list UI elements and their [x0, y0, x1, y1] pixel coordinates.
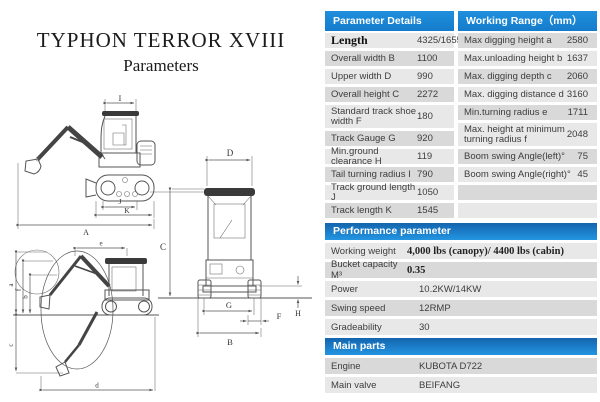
machine-name: TYPHON TERROR XVIII — [0, 28, 322, 53]
spec-sheet: TYPHON TERROR XVIII Parameters I — [0, 0, 600, 402]
range-label: Max. digging distance d — [458, 90, 567, 100]
spec-value: 2272 — [417, 89, 438, 100]
dim-label-G: G — [226, 300, 232, 310]
spec-row: Min.ground clearance H119 — [325, 149, 454, 164]
spec-row: Track ground length J1050 — [325, 185, 454, 200]
parameter-panel: Parameter Details（mm） Working Range（mm） … — [325, 11, 597, 396]
part-row: EngineKUBOTA D722 — [325, 358, 597, 374]
performance-section-header: Performance parameter — [325, 223, 597, 240]
performance-rows: Working weight4,000 lbs (canopy)/ 4400 l… — [325, 243, 597, 335]
range-value: 2060 — [567, 71, 597, 82]
spec-value: 920 — [417, 133, 433, 144]
range-value: 45 — [577, 169, 597, 180]
main-parts-rows: EngineKUBOTA D722Main valveBEIFANG — [325, 358, 597, 393]
range-value: 2580 — [567, 35, 597, 46]
performance-value: 30 — [403, 322, 430, 333]
range-label: Boom swing Angle(left)° — [458, 152, 577, 162]
performance-row: Power10.2KW/14KW — [325, 281, 597, 297]
spec-row: Track length K1545 — [325, 203, 454, 218]
performance-label: Bucket capacity M³ — [325, 259, 403, 281]
spec-label: Track length K — [325, 206, 417, 216]
range-row: Max. height at minimum turning radius f2… — [458, 123, 597, 146]
performance-row: Swing speed12RMP — [325, 300, 597, 316]
performance-row: Gradeability30 — [325, 319, 597, 335]
range-value: 1637 — [567, 53, 597, 64]
dim-label-A: A — [83, 228, 89, 237]
spec-value: 4325/1655 — [417, 35, 462, 46]
spec-label: Upper width D — [325, 72, 417, 82]
dim-label-c: c — [7, 343, 15, 346]
spec-value: 1545 — [417, 205, 438, 216]
dim-label-J: J — [119, 197, 122, 206]
dim-label-B: B — [227, 337, 233, 347]
performance-label: Power — [325, 284, 403, 295]
dim-label-b: b — [22, 295, 30, 299]
spec-value: 1050 — [417, 187, 438, 198]
spec-row: Standard track shoe width F180 — [325, 105, 454, 128]
spec-label: Min.ground clearance H — [325, 147, 417, 167]
range-value: 2048 — [567, 129, 597, 140]
performance-value: 10.2KW/14KW — [403, 284, 481, 295]
performance-label: Working weight — [325, 246, 403, 257]
range-row: Boom swing Angle(left)°75 — [458, 149, 597, 164]
front-view-diagram: D C H G F — [150, 112, 320, 362]
working-range-diagram: e a f b c d — [5, 240, 165, 402]
performance-label: Swing speed — [325, 303, 403, 314]
dim-label-D: D — [227, 148, 234, 158]
working-range-column: Max digging height a2580Max.unloading he… — [458, 33, 597, 221]
dim-label-K: K — [124, 206, 130, 215]
working-range-header: Working Range（mm） — [458, 11, 597, 31]
dim-label-F: F — [277, 311, 282, 321]
part-value: BEIFANG — [403, 380, 460, 391]
spec-label: Overall height C — [325, 90, 417, 100]
range-value: 3160 — [567, 89, 597, 100]
performance-row: Bucket capacity M³0.35 — [325, 262, 597, 278]
part-label: Engine — [325, 361, 403, 372]
title-subline: Parameters — [0, 56, 322, 76]
range-empty-row — [458, 185, 597, 200]
range-row: Max. digging distance d3160 — [458, 87, 597, 102]
spec-table-header: Parameter Details（mm） Working Range（mm） — [325, 11, 597, 31]
range-label: Min.turning radius e — [458, 108, 568, 118]
part-label: Main valve — [325, 380, 403, 391]
range-row: Max digging height a2580 — [458, 33, 597, 48]
range-row: Min.turning radius e1711 — [458, 105, 597, 120]
range-row: Max.unloading height b1637 — [458, 51, 597, 66]
range-label: Boom swing Angle(right)° — [458, 170, 577, 180]
parameter-details-column: Length4325/1655Overall width B1100Upper … — [325, 33, 454, 221]
spec-label: Track Gauge G — [325, 134, 417, 144]
spec-label: Overall width B — [325, 54, 417, 64]
range-label: Max digging height a — [458, 36, 567, 46]
range-row: Boom swing Angle(right)°45 — [458, 167, 597, 182]
spec-value: 119 — [417, 151, 432, 162]
spec-row: Upper width D990 — [325, 69, 454, 84]
dim-label-I: I — [119, 94, 122, 103]
main-parts-section-header: Main parts — [325, 338, 597, 355]
performance-value: 12RMP — [403, 303, 451, 314]
performance-row: Working weight4,000 lbs (canopy)/ 4400 l… — [325, 243, 597, 259]
dim-label-e: e — [99, 240, 102, 248]
range-value: 1711 — [568, 107, 597, 118]
range-empty-row — [458, 203, 597, 218]
range-label: Max.unloading height b — [458, 54, 567, 64]
spec-value: 990 — [417, 71, 433, 82]
page-title: TYPHON TERROR XVIII Parameters — [0, 28, 322, 76]
performance-label: Gradeability — [325, 322, 403, 333]
range-value: 75 — [577, 151, 597, 162]
spec-value: 1100 — [417, 53, 437, 64]
spec-value: 790 — [417, 169, 433, 180]
range-label: Max. height at minimum turning radius f — [458, 125, 567, 145]
performance-value: 0.35 — [403, 265, 425, 276]
range-row: Max. digging depth c2060 — [458, 69, 597, 84]
side-view-diagram: I J K A — [10, 93, 160, 237]
part-value: KUBOTA D722 — [403, 361, 482, 372]
spec-label: Length — [325, 34, 417, 47]
spec-value: 180 — [417, 111, 433, 122]
spec-row: Overall width B1100 — [325, 51, 454, 66]
spec-row: Track Gauge G920 — [325, 131, 454, 146]
spec-row: Tail turning radius I790 — [325, 167, 454, 182]
spec-label: Standard track shoe width F — [325, 107, 417, 127]
performance-value: 4,000 lbs (canopy)/ 4400 lbs (cabin) — [403, 246, 564, 257]
dim-label-H: H — [295, 309, 301, 318]
spec-label: Track ground length J — [325, 183, 417, 203]
dim-label-d: d — [95, 382, 99, 390]
parameter-details-header: Parameter Details（mm） — [325, 11, 454, 31]
dim-label-a: a — [7, 283, 15, 287]
spec-label: Tail turning radius I — [325, 170, 417, 180]
spec-row: Overall height C2272 — [325, 87, 454, 102]
spec-row: Length4325/1655 — [325, 33, 454, 48]
part-row: Main valveBEIFANG — [325, 377, 597, 393]
range-label: Max. digging depth c — [458, 72, 567, 82]
